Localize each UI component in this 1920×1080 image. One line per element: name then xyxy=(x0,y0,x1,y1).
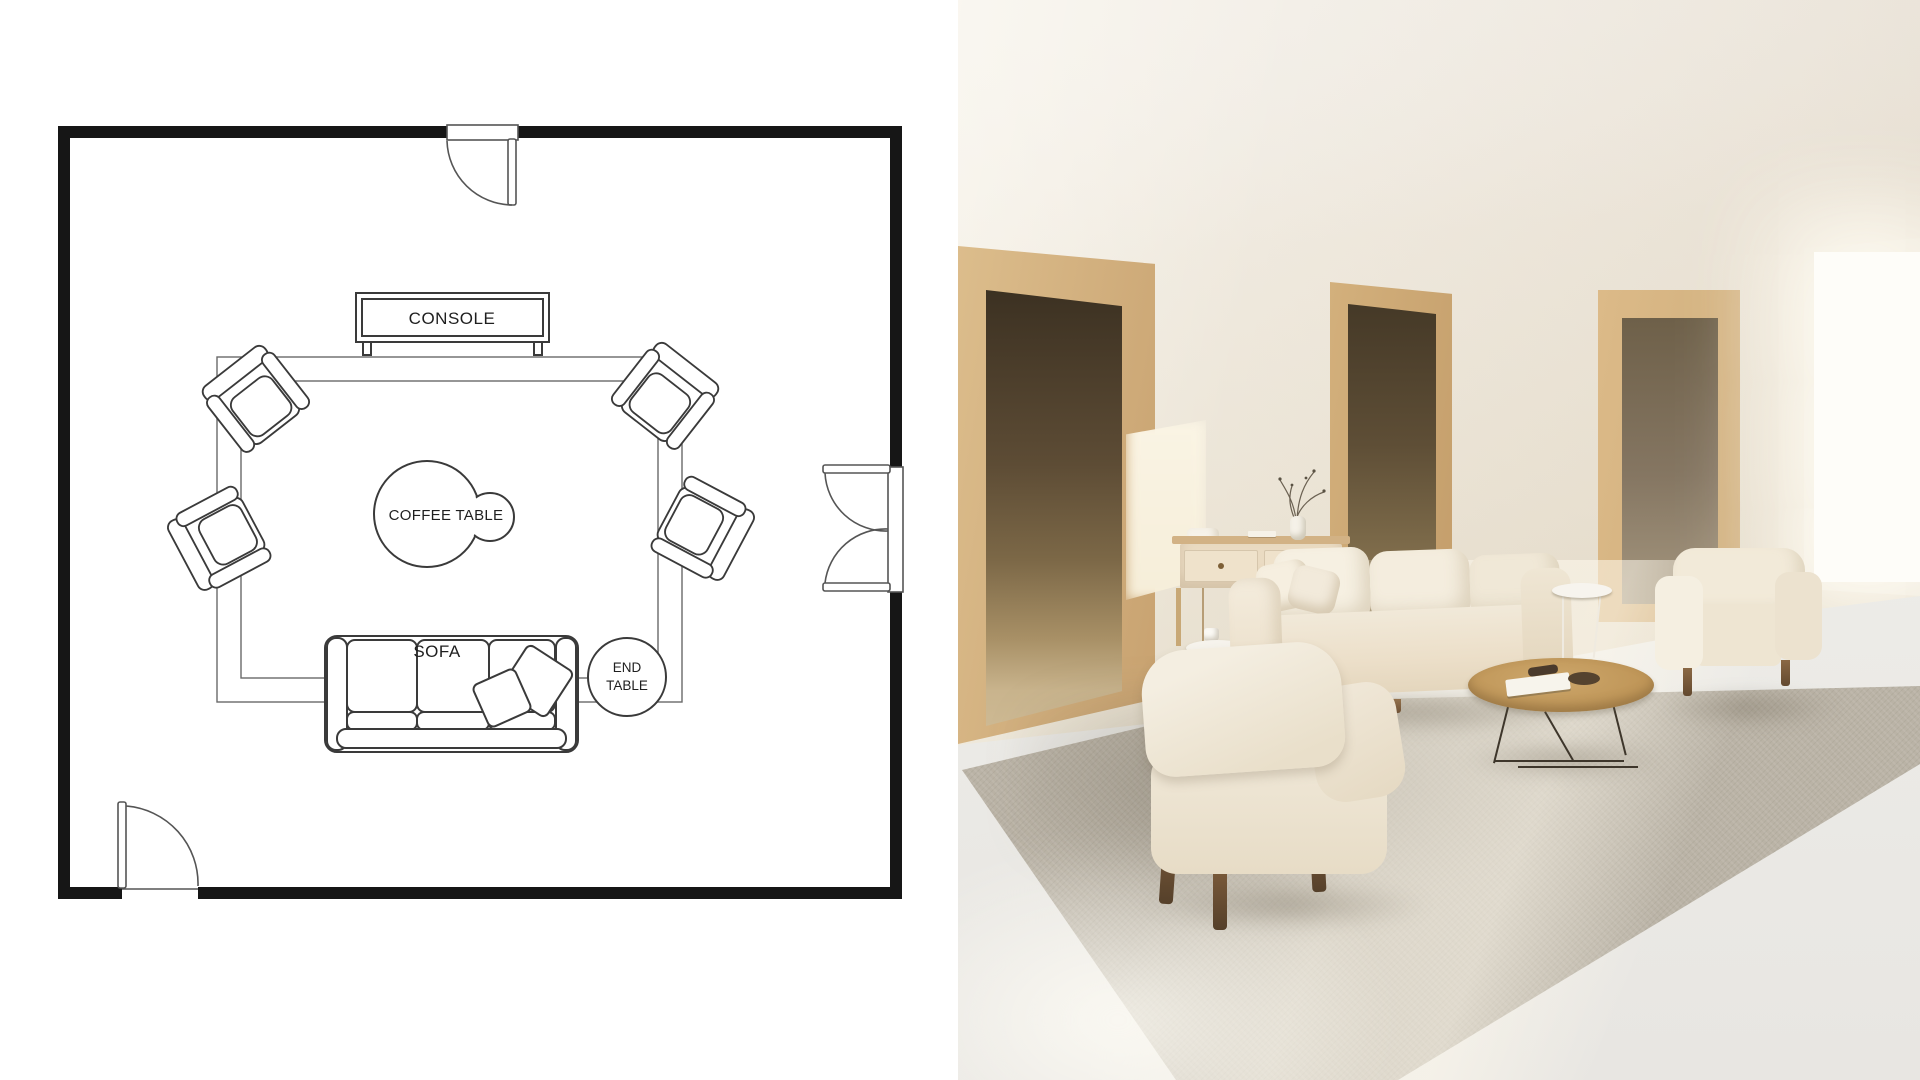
console-table-top xyxy=(1172,536,1350,544)
coffee-table-rail xyxy=(1518,766,1638,768)
end-table-label-1: END xyxy=(613,660,642,675)
armchair-top-right xyxy=(609,338,724,452)
armchair-top-left xyxy=(197,341,312,455)
doorway-left-opening xyxy=(986,290,1122,726)
coffee-table-rail xyxy=(1494,760,1624,762)
console-label: CONSOLE xyxy=(409,309,496,328)
armchair-leg xyxy=(1781,660,1790,686)
armchair-back xyxy=(1139,639,1347,779)
floor-plan: CONSOLE xyxy=(0,0,958,1080)
window xyxy=(1814,252,1920,582)
foreground-armchair xyxy=(1143,638,1405,924)
armchair-leg xyxy=(1683,668,1692,696)
floor-plan-panel: CONSOLE xyxy=(0,0,958,1080)
drawer-knob xyxy=(1218,563,1224,569)
door-top xyxy=(447,125,518,205)
sofa-label: SOFA xyxy=(413,642,461,661)
right-armchair xyxy=(1655,548,1823,718)
vase-branches xyxy=(1276,462,1330,522)
armchair-arm xyxy=(1655,576,1703,670)
door-bottom-left xyxy=(118,802,198,889)
room-photo xyxy=(958,0,1920,1080)
split-view: CONSOLE xyxy=(0,0,1920,1080)
armchair-seat xyxy=(1695,604,1781,666)
armchair-mid-left xyxy=(164,484,273,595)
coffee-table-label: COFFEE TABLE xyxy=(389,507,504,524)
double-door-right xyxy=(823,465,903,592)
vase xyxy=(1290,516,1306,540)
end-table-label-2: TABLE xyxy=(606,678,648,693)
armchair-leg xyxy=(1213,870,1227,930)
c-side-table xyxy=(1552,583,1612,598)
armchair-arm xyxy=(1775,572,1822,660)
c-table-leg xyxy=(1562,596,1564,658)
console-book xyxy=(1248,531,1276,537)
bowl xyxy=(1568,672,1600,685)
armchair-mid-right xyxy=(649,474,758,585)
end-table xyxy=(588,638,666,716)
